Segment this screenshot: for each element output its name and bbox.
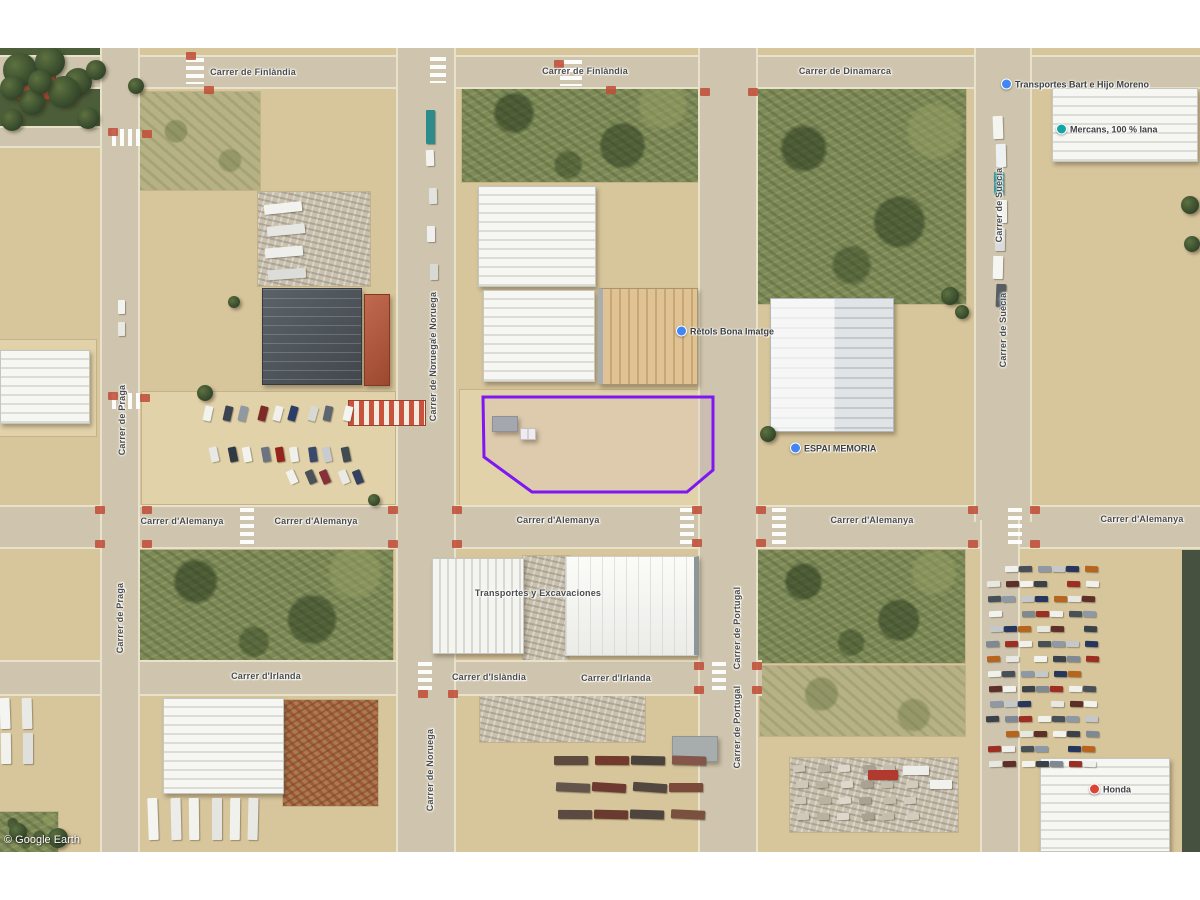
vehicle: [248, 798, 259, 840]
vehicle: [1019, 566, 1032, 572]
vehicle: [1006, 731, 1019, 737]
vehicle: [1083, 761, 1096, 767]
vehicle: [118, 300, 125, 314]
vehicle: [1038, 716, 1051, 722]
terrain-scrub: [758, 88, 966, 304]
street-label: Carrer de Noruega: [428, 339, 438, 421]
vehicle: [838, 765, 850, 773]
tree: [1184, 236, 1200, 252]
street-label: Carrer d'Islàndia: [452, 672, 526, 682]
warehouse-two-tone: [770, 298, 894, 432]
curb-ramp: [452, 540, 462, 548]
vehicle: [794, 797, 806, 804]
vehicle: [796, 781, 808, 788]
street-label: Carrer d'Alemanya: [830, 515, 913, 525]
curb-ramp: [756, 506, 766, 514]
tree: [0, 76, 24, 100]
crosswalk: [240, 508, 254, 546]
curb-ramp: [700, 88, 710, 96]
vehicle: [148, 798, 160, 840]
vehicle: [1067, 656, 1080, 662]
vehicle: [1022, 686, 1035, 692]
vehicle: [671, 809, 705, 820]
curb-ramp: [1030, 506, 1040, 514]
vehicle: [904, 797, 916, 805]
tree: [86, 60, 106, 80]
vehicle: [989, 611, 1002, 617]
vehicle: [839, 796, 852, 804]
street-label: Carrer de Praga: [115, 583, 125, 654]
crosswalk: [430, 57, 446, 83]
crosswalk: [772, 508, 786, 546]
curb-ramp: [204, 86, 214, 94]
terrain-scrub: [140, 550, 393, 662]
vehicle: [1004, 701, 1017, 707]
vehicle: [816, 780, 829, 788]
vehicle: [1003, 686, 1016, 692]
vehicle: [1021, 671, 1034, 677]
vehicle: [817, 813, 829, 820]
vehicle: [1020, 581, 1033, 587]
vehicle: [595, 756, 629, 765]
curb-ramp: [752, 662, 762, 670]
vehicle: [633, 782, 668, 793]
crosswalk: [186, 58, 204, 84]
curb-ramp: [752, 686, 762, 694]
vehicle: [1067, 581, 1080, 587]
vehicle: [426, 110, 435, 144]
building-red: [364, 294, 390, 386]
vehicle: [1006, 581, 1019, 587]
vehicle: [906, 781, 918, 788]
terrain-scrublight: [760, 666, 965, 736]
curb-ramp: [388, 540, 398, 548]
tree: [955, 305, 969, 319]
tree: [941, 287, 959, 305]
vehicle: [1021, 596, 1034, 602]
vehicle: [1068, 596, 1081, 602]
vehicle: [1066, 641, 1079, 647]
tree: [1, 109, 23, 131]
poi-text: ESPAI MEMORIA: [804, 443, 876, 453]
vehicle: [1020, 731, 1033, 737]
vehicle: [427, 226, 435, 242]
vehicle: [1067, 731, 1080, 737]
vehicle: [868, 770, 898, 780]
poi-icon: [790, 443, 801, 454]
terrain-clutter: [523, 556, 569, 660]
curb-ramp: [694, 662, 704, 670]
vehicle: [671, 755, 705, 765]
vehicle: [1034, 731, 1047, 737]
vehicle: [818, 765, 831, 773]
curb-ramp: [142, 506, 152, 514]
vehicle: [1052, 716, 1065, 722]
vehicle: [819, 797, 831, 804]
vehicle: [594, 810, 628, 820]
vehicle: [882, 813, 895, 821]
tree: [228, 296, 240, 308]
poi-label[interactable]: ESPAI MEMORIA: [790, 443, 876, 454]
vehicle: [930, 780, 952, 789]
poi-text: Transportes Bart e Hijo Moreno: [1015, 79, 1149, 89]
vehicle: [592, 782, 626, 793]
curb-ramp: [142, 130, 152, 138]
warehouse-tan: [598, 288, 698, 385]
vehicle: [988, 596, 1001, 602]
vehicle: [554, 756, 588, 765]
vehicle: [1035, 596, 1048, 602]
vehicle: [1019, 716, 1032, 722]
vehicle: [1083, 611, 1096, 617]
vehicle: [986, 641, 999, 647]
vehicle: [1036, 611, 1049, 617]
vehicle: [212, 798, 222, 840]
poi-label[interactable]: Rètols Bona Imatge: [676, 326, 774, 337]
vehicle: [23, 733, 33, 764]
vehicle: [1085, 641, 1098, 647]
street-label: Transportes y Excavaciones: [475, 588, 601, 598]
vehicle: [796, 813, 808, 820]
street-label: Carrer de Noruega: [425, 729, 435, 811]
poi-icon: [1056, 124, 1067, 135]
vehicle: [1018, 626, 1031, 632]
street-label: Carrer de Dinamarca: [799, 66, 891, 76]
vehicle: [429, 188, 437, 204]
warehouse: [163, 698, 284, 794]
curb-ramp: [388, 506, 398, 514]
crosswalk: [1008, 508, 1022, 546]
curb-ramp: [1030, 540, 1040, 548]
vehicle: [1052, 566, 1065, 572]
vehicle: [1005, 641, 1018, 647]
vehicle: [884, 797, 896, 805]
vehicle: [989, 701, 1002, 707]
vehicle: [993, 116, 1004, 139]
street-label: Carrer de Finlàndia: [210, 67, 296, 77]
vehicle: [861, 781, 873, 789]
street-label: Carrer de Portugal: [732, 686, 742, 769]
vehicle: [1018, 701, 1031, 707]
vehicle: [1069, 611, 1082, 617]
vehicle: [1035, 671, 1048, 677]
vehicle: [1053, 731, 1066, 737]
tree: [197, 385, 213, 401]
vehicle: [881, 781, 893, 789]
curb-ramp: [694, 686, 704, 694]
vehicle: [1004, 626, 1017, 632]
curb-ramp: [692, 539, 702, 547]
curb-ramp: [606, 86, 616, 94]
tree: [28, 70, 52, 94]
vehicle: [862, 812, 875, 820]
street-label: Carrer d'Alemanya: [516, 515, 599, 525]
vehicle: [308, 447, 318, 463]
street-label: Carrer de Suècia: [998, 293, 1008, 368]
street-label: Carrer de Suècia: [994, 168, 1004, 243]
curb-ramp: [95, 506, 105, 514]
poi-label[interactable]: Honda: [1089, 784, 1131, 795]
vehicle: [989, 686, 1002, 692]
vehicle: [430, 264, 438, 280]
curb-ramp: [448, 690, 458, 698]
vehicle: [987, 581, 1000, 587]
tree: [760, 426, 776, 442]
poi-icon: [1089, 784, 1100, 795]
street-label: Carrer d'Alemanya: [140, 516, 223, 526]
vehicle: [987, 656, 1000, 662]
street-label: Carrer d'Alemanya: [1100, 514, 1183, 524]
warehouse: [0, 350, 90, 424]
vehicle: [1022, 611, 1035, 617]
vehicle: [993, 256, 1004, 279]
vehicle: [1038, 641, 1051, 647]
vehicle: [1053, 656, 1066, 662]
vehicle: [793, 764, 806, 772]
vehicle: [230, 798, 241, 840]
vehicle: [1084, 626, 1097, 632]
vehicle: [1068, 671, 1081, 677]
curb-ramp: [95, 540, 105, 548]
vehicle: [1068, 746, 1081, 752]
vehicle: [21, 698, 32, 729]
vehicle: [631, 756, 665, 766]
vehicle: [1035, 746, 1048, 752]
vehicle: [669, 783, 703, 792]
vehicle: [837, 813, 849, 820]
vehicle: [118, 322, 125, 336]
vehicle: [1036, 686, 1049, 692]
vehicle: [859, 797, 872, 805]
poi-icon: [676, 326, 687, 337]
vehicle: [1054, 671, 1067, 677]
curb-ramp: [108, 128, 118, 136]
vehicle: [189, 798, 200, 840]
vehicle: [1069, 686, 1082, 692]
vehicle: [1019, 641, 1032, 647]
terrain-clutter: [480, 690, 645, 742]
red-white-barrier: [348, 400, 426, 426]
vehicle: [1003, 761, 1016, 767]
warehouse: [1040, 758, 1170, 852]
vehicle: [1006, 656, 1019, 662]
curb-ramp: [142, 540, 152, 548]
vehicle: [1066, 566, 1079, 572]
curb-ramp: [140, 394, 150, 402]
street-label: Carrer de Finlàndia: [542, 66, 628, 76]
curb-ramp: [186, 52, 196, 60]
vehicle: [988, 746, 1001, 752]
curb-ramp: [756, 539, 766, 547]
vehicle: [1085, 566, 1098, 572]
vehicle: [1085, 656, 1098, 662]
vehicle: [630, 809, 664, 819]
vehicle: [988, 671, 1001, 677]
vehicle: [1021, 746, 1034, 752]
vehicle: [1002, 596, 1015, 602]
vehicle: [1, 733, 11, 764]
shed-gray: [492, 416, 518, 432]
vehicle: [1083, 686, 1096, 692]
vehicle: [1002, 746, 1015, 752]
map-attribution: © Google Earth: [4, 834, 80, 846]
vehicle: [1050, 761, 1063, 767]
vehicle: [989, 761, 1002, 767]
vehicle: [1052, 641, 1065, 647]
vehicle: [1022, 761, 1035, 767]
warehouse: [483, 290, 595, 382]
vehicle: [1051, 701, 1064, 707]
tree: [368, 494, 380, 506]
vehicle: [989, 626, 1002, 632]
terrain-rust: [283, 700, 378, 806]
vehicle: [426, 150, 435, 166]
poi-text: Mercans, 100 % lana: [1070, 124, 1158, 134]
vehicle: [1082, 596, 1095, 602]
street-label: Carrer de Portugal: [732, 587, 742, 670]
vehicle: [1069, 761, 1082, 767]
vehicle: [1005, 566, 1018, 572]
vehicle: [1085, 716, 1098, 722]
shed: [520, 428, 536, 440]
terrain-scrublight: [140, 92, 260, 190]
curb-ramp: [968, 506, 978, 514]
poi-label[interactable]: Transportes Bart e Hijo Moreno: [1001, 79, 1149, 90]
vehicle: [1037, 626, 1050, 632]
terrain-scrub: [462, 86, 698, 182]
vehicle: [1038, 566, 1051, 572]
tree: [128, 78, 144, 94]
street-label: Carrer d'Alemanya: [274, 516, 357, 526]
vehicle: [903, 766, 929, 775]
warehouse-dark: [262, 288, 362, 385]
vehicle: [558, 810, 592, 819]
vehicle: [1005, 716, 1018, 722]
vehicle: [1002, 671, 1015, 677]
vehicle: [1034, 656, 1047, 662]
road: [698, 48, 758, 852]
tree: [77, 107, 99, 129]
crosswalk: [712, 662, 726, 694]
poi-icon: [1001, 79, 1012, 90]
curb-ramp: [968, 540, 978, 548]
vehicle: [996, 144, 1007, 167]
vehicle: [1082, 746, 1095, 752]
vehicle: [1050, 686, 1063, 692]
vehicle: [1070, 701, 1083, 707]
vehicle: [170, 798, 181, 840]
warehouse-bright: [565, 556, 699, 656]
poi-label[interactable]: Mercans, 100 % lana: [1056, 124, 1158, 135]
street-label: Carrer d'Irlanda: [581, 673, 651, 683]
curb-ramp: [692, 506, 702, 514]
poi-text: Rètols Bona Imatge: [690, 326, 774, 336]
vehicle: [840, 781, 853, 789]
vehicle: [1066, 716, 1079, 722]
vehicle: [1084, 701, 1097, 707]
vehicle: [1050, 611, 1063, 617]
vehicle: [1054, 596, 1067, 602]
tree: [1181, 196, 1199, 214]
vehicle: [0, 698, 11, 729]
vehicle: [1051, 626, 1064, 632]
curb-ramp: [418, 690, 428, 698]
curb-ramp: [452, 506, 462, 514]
tree: [48, 76, 80, 108]
street-label: Carrer de Praga: [117, 385, 127, 456]
poi-text: Honda: [1103, 784, 1131, 794]
page: { "meta": { "watermark": "© Google Earth…: [0, 0, 1200, 900]
map-canvas[interactable]: © Google Earth Carrer de FinlàndiaCarrer…: [0, 48, 1200, 852]
vehicle: [1034, 581, 1047, 587]
vehicle: [556, 782, 590, 793]
curb-ramp: [748, 88, 758, 96]
vehicle: [1085, 731, 1098, 737]
vehicle: [1085, 581, 1098, 587]
warehouse: [478, 186, 596, 287]
terrain-pale: [460, 390, 722, 506]
vehicle: [1036, 761, 1049, 767]
street-label: Carrer d'Irlanda: [231, 671, 301, 681]
terrain-scrub: [758, 550, 965, 663]
warehouse: [432, 558, 524, 654]
terrain-darkstrip: [1182, 550, 1200, 852]
vehicle: [986, 716, 999, 722]
vehicle: [906, 813, 918, 821]
